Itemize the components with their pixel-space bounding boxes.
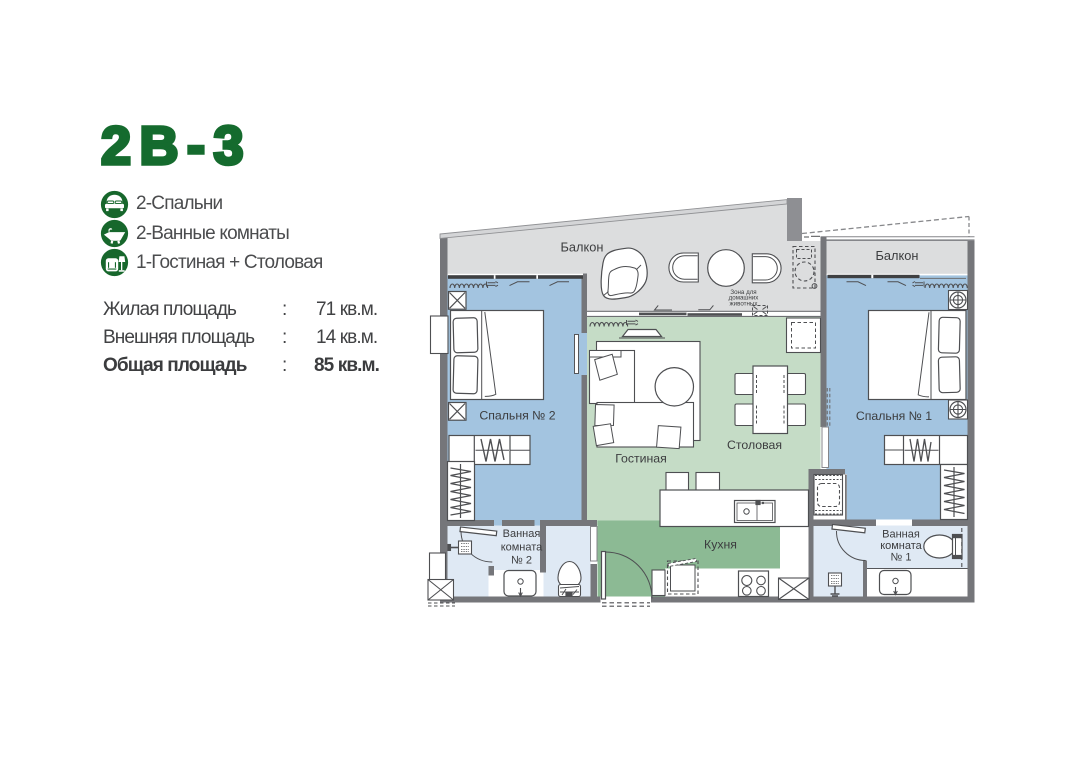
- svg-text:животных: животных: [730, 301, 759, 308]
- svg-text:Ванная: Ванная: [503, 528, 541, 540]
- svg-text:Балкон: Балкон: [561, 240, 604, 255]
- svg-text:Спальня № 2: Спальня № 2: [479, 409, 555, 423]
- svg-text:Балкон: Балкон: [876, 248, 919, 263]
- svg-text:№ 2: № 2: [511, 555, 532, 567]
- svg-text:Ванная: Ванная: [882, 528, 920, 540]
- svg-text:комната: комната: [880, 540, 922, 552]
- svg-text:№ 1: № 1: [891, 552, 912, 564]
- svg-text:Кухня: Кухня: [704, 538, 737, 552]
- svg-text:Столовая: Столовая: [727, 438, 782, 452]
- svg-text:Гостиная: Гостиная: [615, 452, 667, 466]
- svg-text:комната: комната: [501, 541, 543, 553]
- svg-text:Спальня № 1: Спальня № 1: [856, 409, 932, 423]
